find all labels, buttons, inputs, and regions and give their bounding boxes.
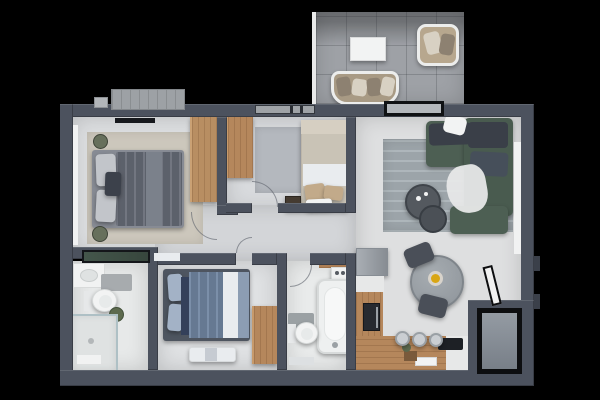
living-window bbox=[514, 142, 521, 254]
bench-blanket bbox=[205, 348, 217, 361]
shower-glass-vertical bbox=[116, 315, 118, 370]
plant bbox=[92, 226, 108, 242]
fruit-yellow bbox=[431, 274, 440, 283]
wall-bedroom3-east bbox=[346, 117, 356, 213]
bar-stool bbox=[412, 332, 427, 347]
coffee-table-round-small bbox=[419, 205, 447, 233]
plant bbox=[93, 134, 108, 149]
master-window bbox=[73, 125, 78, 245]
single-bed-headboard bbox=[301, 120, 348, 134]
wall-bottom bbox=[60, 370, 534, 386]
wall-bedroom2-east bbox=[277, 253, 287, 370]
table-decor-dot bbox=[424, 192, 428, 196]
bed2-bench bbox=[189, 347, 236, 362]
wall-nub bbox=[534, 294, 540, 309]
oven bbox=[363, 303, 380, 331]
wall-nub bbox=[534, 256, 540, 271]
wall-bathroom1-east bbox=[148, 247, 158, 370]
bar-stool bbox=[429, 333, 443, 347]
wall-bedroom3-south-right bbox=[278, 203, 346, 213]
entry-vestibule-floor bbox=[482, 313, 517, 369]
loveseat-pillow bbox=[379, 76, 396, 97]
loveseat-pillow bbox=[366, 77, 382, 96]
wall-tv bbox=[115, 118, 155, 123]
wall-kitchen-west bbox=[346, 253, 356, 370]
master-accent-pillow bbox=[105, 172, 122, 197]
cutting-board bbox=[415, 357, 437, 366]
ac-unit-small bbox=[94, 97, 108, 108]
oven-handle bbox=[376, 307, 378, 328]
balcony-sliding-door bbox=[384, 101, 444, 116]
wall-bathroom2-north bbox=[310, 253, 346, 265]
bed2-duvet-end bbox=[238, 272, 249, 338]
sofa-cushion bbox=[468, 122, 508, 148]
kitchen-counter-white bbox=[356, 276, 384, 292]
ac-unit-large bbox=[111, 89, 185, 110]
wall-bedroom2-north-right bbox=[252, 253, 277, 265]
sink-basin bbox=[80, 269, 98, 282]
toilet1-inner bbox=[99, 295, 112, 308]
washer-dial bbox=[335, 271, 339, 275]
shower-drain bbox=[88, 338, 94, 344]
single-bed-sheet bbox=[303, 164, 346, 186]
bathtub-faucet bbox=[332, 342, 338, 348]
fridge bbox=[356, 248, 388, 276]
bedroom3-wardrobe bbox=[226, 117, 253, 178]
wall-master-east bbox=[217, 117, 227, 209]
master-wardrobe bbox=[190, 117, 217, 202]
kitchen-box bbox=[404, 351, 417, 361]
window-mullion bbox=[290, 106, 293, 113]
bedroom2-wardrobe bbox=[252, 306, 277, 364]
toilet2-inner bbox=[301, 328, 313, 340]
armchair-cushion bbox=[438, 33, 455, 56]
bedroom3-window bbox=[255, 105, 315, 114]
bath-mat2 bbox=[289, 357, 314, 365]
loveseat-pillow bbox=[335, 76, 352, 97]
toilet2-bowl bbox=[295, 322, 318, 344]
wall-left bbox=[60, 104, 73, 386]
floor-plan-render bbox=[0, 0, 600, 400]
glass-screen-green bbox=[82, 250, 150, 263]
bath-mat-white bbox=[77, 355, 101, 364]
bar-stool bbox=[395, 331, 410, 346]
door-threshold-white bbox=[154, 253, 180, 261]
master-duvet-fold bbox=[146, 152, 162, 226]
wall-bedroom3-south-left bbox=[226, 203, 252, 213]
shower-glass-horizontal bbox=[73, 314, 118, 316]
bed2-runner-white bbox=[223, 272, 238, 338]
table-decor-dot bbox=[416, 196, 421, 201]
bathtub-basin bbox=[324, 287, 346, 341]
balcony-coffee-table bbox=[350, 37, 386, 61]
window-mullion bbox=[300, 106, 303, 113]
balcony-loveseat bbox=[331, 71, 399, 105]
balcony-wicker-armchair bbox=[417, 24, 459, 66]
washer-dial bbox=[341, 271, 345, 275]
